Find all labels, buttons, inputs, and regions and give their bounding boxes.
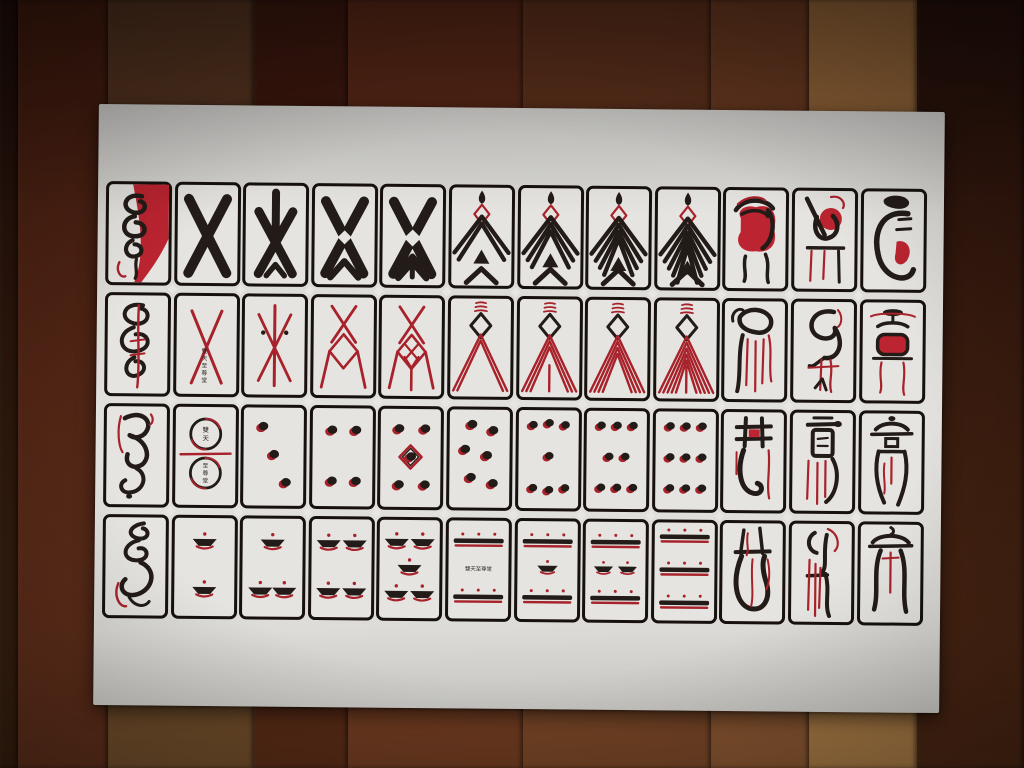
card-art — [722, 523, 783, 622]
cut-mark — [852, 402, 862, 412]
card-grid: 雙天至尊堂雙天至尊堂雙天至尊堂 — [102, 181, 928, 626]
cut-mark — [579, 288, 589, 298]
svg-text:堂: 堂 — [202, 477, 208, 485]
card-row1-col4-x-figure — [311, 183, 378, 288]
card-art — [657, 189, 718, 288]
card-row3-col11-court-shell — [789, 410, 856, 515]
card-row1-col10-court-red-robe — [723, 187, 790, 292]
card-art — [588, 189, 649, 288]
card-row3-col7-dots — [515, 407, 582, 512]
cut-mark — [853, 291, 863, 301]
card-art — [793, 302, 854, 401]
card-art — [587, 300, 648, 399]
card-art — [108, 184, 169, 283]
card-art — [107, 295, 168, 394]
card-row3-col4-dots — [309, 405, 376, 510]
card-row4-col7-bars — [514, 518, 581, 623]
card-art — [519, 299, 580, 398]
card-art — [863, 191, 924, 290]
svg-text:堂: 堂 — [201, 376, 207, 384]
cut-mark — [234, 507, 244, 517]
cut-mark — [648, 289, 658, 299]
cut-mark — [303, 508, 313, 518]
card-art — [586, 411, 647, 510]
card-art — [311, 519, 372, 618]
cut-mark — [305, 286, 315, 296]
card-row2-col8-red-chevron — [584, 297, 651, 402]
svg-text:雙: 雙 — [202, 425, 209, 434]
card-row2-col4-red-x — [310, 294, 377, 399]
maker-mark-text: 雙天至尊堂 — [465, 564, 493, 572]
photo-scene: 雙天至尊堂雙天至尊堂雙天至尊堂 — [0, 0, 1024, 768]
card-row1-col3-x-figure — [242, 182, 309, 287]
card-row2-col6-red-chevron — [447, 295, 514, 400]
card-row3-col12-court-tall — [858, 410, 925, 515]
svg-text:雙: 雙 — [201, 347, 207, 355]
card-art — [174, 518, 235, 617]
cut-mark — [647, 400, 657, 410]
card-art — [792, 413, 853, 512]
floor-plank — [0, 0, 18, 768]
card-row2-col10-court-hood — [721, 298, 788, 403]
card-art — [242, 518, 303, 617]
card-art: 雙天至尊堂 — [448, 520, 509, 619]
svg-text:尊: 尊 — [202, 469, 208, 477]
card-art — [655, 411, 716, 510]
card-row2-col5-red-x — [378, 295, 445, 400]
cut-mark — [508, 510, 518, 520]
cut-mark — [441, 398, 451, 408]
card-art — [518, 410, 579, 509]
cut-mark — [509, 399, 519, 409]
card-row2-col12-court-red-seat — [859, 299, 926, 404]
cut-mark — [577, 510, 587, 520]
card-art — [794, 191, 855, 290]
card-sheet: 雙天至尊堂雙天至尊堂雙天至尊堂 — [93, 104, 945, 713]
card-row1-col7-chevron-man — [517, 185, 584, 290]
card-row4-col11-court-staff — [788, 521, 855, 626]
card-row1-col2-x-figure — [174, 182, 241, 287]
card-art — [383, 187, 444, 286]
card-art — [450, 298, 511, 397]
cut-mark — [235, 396, 245, 406]
card-row1-col9-chevron-man — [654, 186, 721, 291]
cut-mark — [165, 506, 175, 516]
cut-mark — [167, 284, 177, 294]
cut-mark — [646, 511, 656, 521]
card-art — [585, 522, 646, 621]
cut-mark — [851, 513, 861, 523]
card-art — [520, 188, 581, 287]
svg-text:尊: 尊 — [201, 369, 207, 377]
card-row3-col2-coin-circles: 雙天至尊堂 — [172, 404, 239, 509]
card-row1-col1-ace-man — [105, 181, 172, 286]
svg-text:天: 天 — [201, 355, 207, 362]
svg-text:天: 天 — [202, 434, 209, 442]
card-row3-col1-ace-beast — [103, 403, 170, 508]
card-art — [313, 297, 374, 396]
cut-mark — [236, 285, 246, 295]
card-row4-col4-bowls — [308, 516, 375, 621]
card-art — [380, 409, 441, 508]
card-row3-col10-court-gate — [720, 409, 787, 514]
cut-mark — [510, 288, 520, 298]
svg-text:至: 至 — [202, 462, 208, 469]
card-row3-col8-dots — [583, 408, 650, 513]
cut-mark — [304, 397, 314, 407]
card-row4-col9-bars — [651, 519, 718, 624]
card-row2-col1-ace-spiral — [104, 292, 171, 397]
card-art — [860, 524, 921, 623]
card-art — [312, 408, 373, 507]
card-row4-col1-ace-flag — [102, 514, 169, 619]
card-row1-col8-chevron-man — [585, 186, 652, 291]
card-row1-col11-court-stool — [791, 188, 858, 293]
card-art — [243, 407, 304, 506]
card-art — [379, 520, 440, 619]
card-row4-col12-court-crown — [857, 521, 924, 626]
card-row2-col3-red-x — [241, 293, 308, 398]
card-row2-col11-court-crane — [790, 299, 857, 404]
card-art — [726, 190, 787, 289]
card-art — [105, 517, 166, 616]
cut-mark — [440, 509, 450, 519]
card-row3-col3-dots — [240, 404, 307, 509]
card-art — [861, 413, 922, 512]
card-row3-col9-dots — [652, 408, 719, 513]
card-art — [449, 409, 510, 508]
card-art — [451, 187, 512, 286]
cut-mark — [578, 399, 588, 409]
card-row2-col7-red-chevron — [516, 296, 583, 401]
card-row4-col2-bowls — [171, 515, 238, 620]
card-art — [245, 185, 306, 284]
card-art — [723, 412, 784, 511]
card-art — [656, 300, 717, 399]
card-row1-col12-court-tongue — [860, 188, 927, 293]
card-row4-col5-bowls — [376, 517, 443, 622]
card-art — [724, 301, 785, 400]
card-row4-col8-bars — [582, 519, 649, 624]
card-art — [177, 185, 238, 284]
card-art — [106, 406, 167, 505]
cut-mark — [785, 290, 795, 300]
card-art — [244, 296, 305, 395]
cut-mark — [166, 395, 176, 405]
card-row4-col3-bowls — [239, 515, 306, 620]
card-art: 雙天至尊堂 — [175, 407, 236, 506]
card-row2-col9-red-chevron — [653, 297, 720, 402]
card-art — [862, 302, 923, 401]
card-art — [382, 298, 443, 397]
card-row3-col5-dots — [377, 406, 444, 511]
cut-mark — [442, 287, 452, 297]
card-row2-col2-red-x: 雙天至尊堂 — [173, 293, 240, 398]
card-row1-col6-chevron-man — [448, 184, 515, 289]
card-row4-col6-bars: 雙天至尊堂 — [445, 517, 512, 622]
card-art — [791, 524, 852, 623]
card-art — [654, 522, 715, 621]
card-row3-col6-dots — [446, 406, 513, 511]
card-art — [314, 186, 375, 285]
card-art — [517, 521, 578, 620]
card-art: 雙天至尊堂 — [176, 296, 237, 395]
cut-mark — [784, 401, 794, 411]
svg-text:至: 至 — [201, 363, 207, 370]
cut-mark — [783, 512, 793, 522]
card-row1-col5-x-figure — [380, 184, 447, 289]
card-row4-col10-court-jar — [719, 520, 786, 625]
